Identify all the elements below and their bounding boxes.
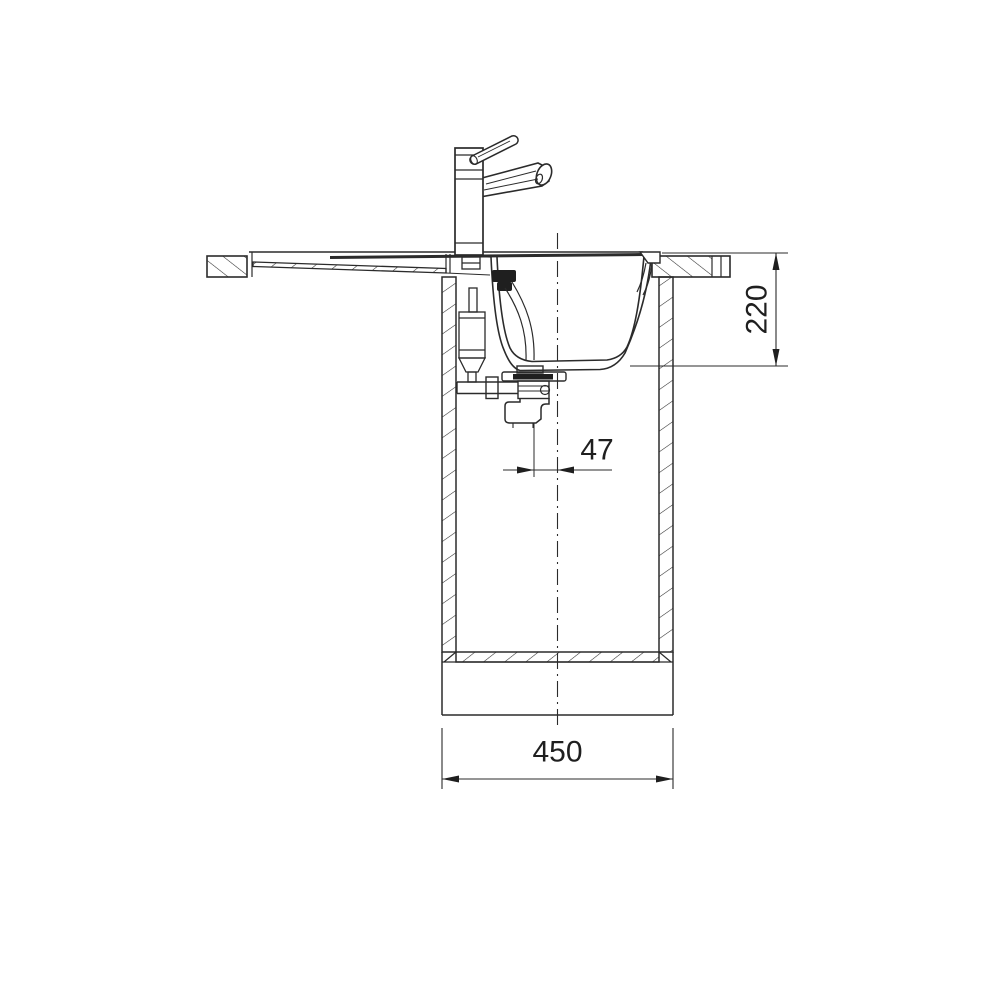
faucet [455,136,555,255]
popup-linkage [492,270,516,282]
arrowhead-left [442,776,459,783]
dimension-depth-220: 220 [741,253,780,366]
technical-drawing-canvas: 220 47 450 [0,0,1000,1000]
arrowhead-right [517,467,534,474]
dimension-drain-offset-47: 47 [503,423,614,477]
dim-label-depth: 220 [741,284,774,334]
drawing-page: 220 47 450 [0,0,1000,1000]
faucet-body [455,148,483,255]
drainboard [249,252,643,275]
cabinet-right-wall [659,277,673,652]
arrowhead-left [558,467,575,474]
faucet-spout [480,162,555,197]
arrowhead-up [773,253,780,270]
dimension-width-450: 450 [442,728,673,789]
countertop-right-section [652,256,730,277]
dim-label-drain-offset: 47 [580,434,613,467]
sink-bowl [491,252,660,371]
countertop-left-section [207,252,252,277]
cabinet-left-wall [442,277,456,652]
arrowhead-right [656,776,673,783]
dim-label-width: 450 [532,736,582,769]
drain-flange-bar [513,374,553,380]
drain-trap [457,366,566,428]
arrowhead-down [773,349,780,366]
